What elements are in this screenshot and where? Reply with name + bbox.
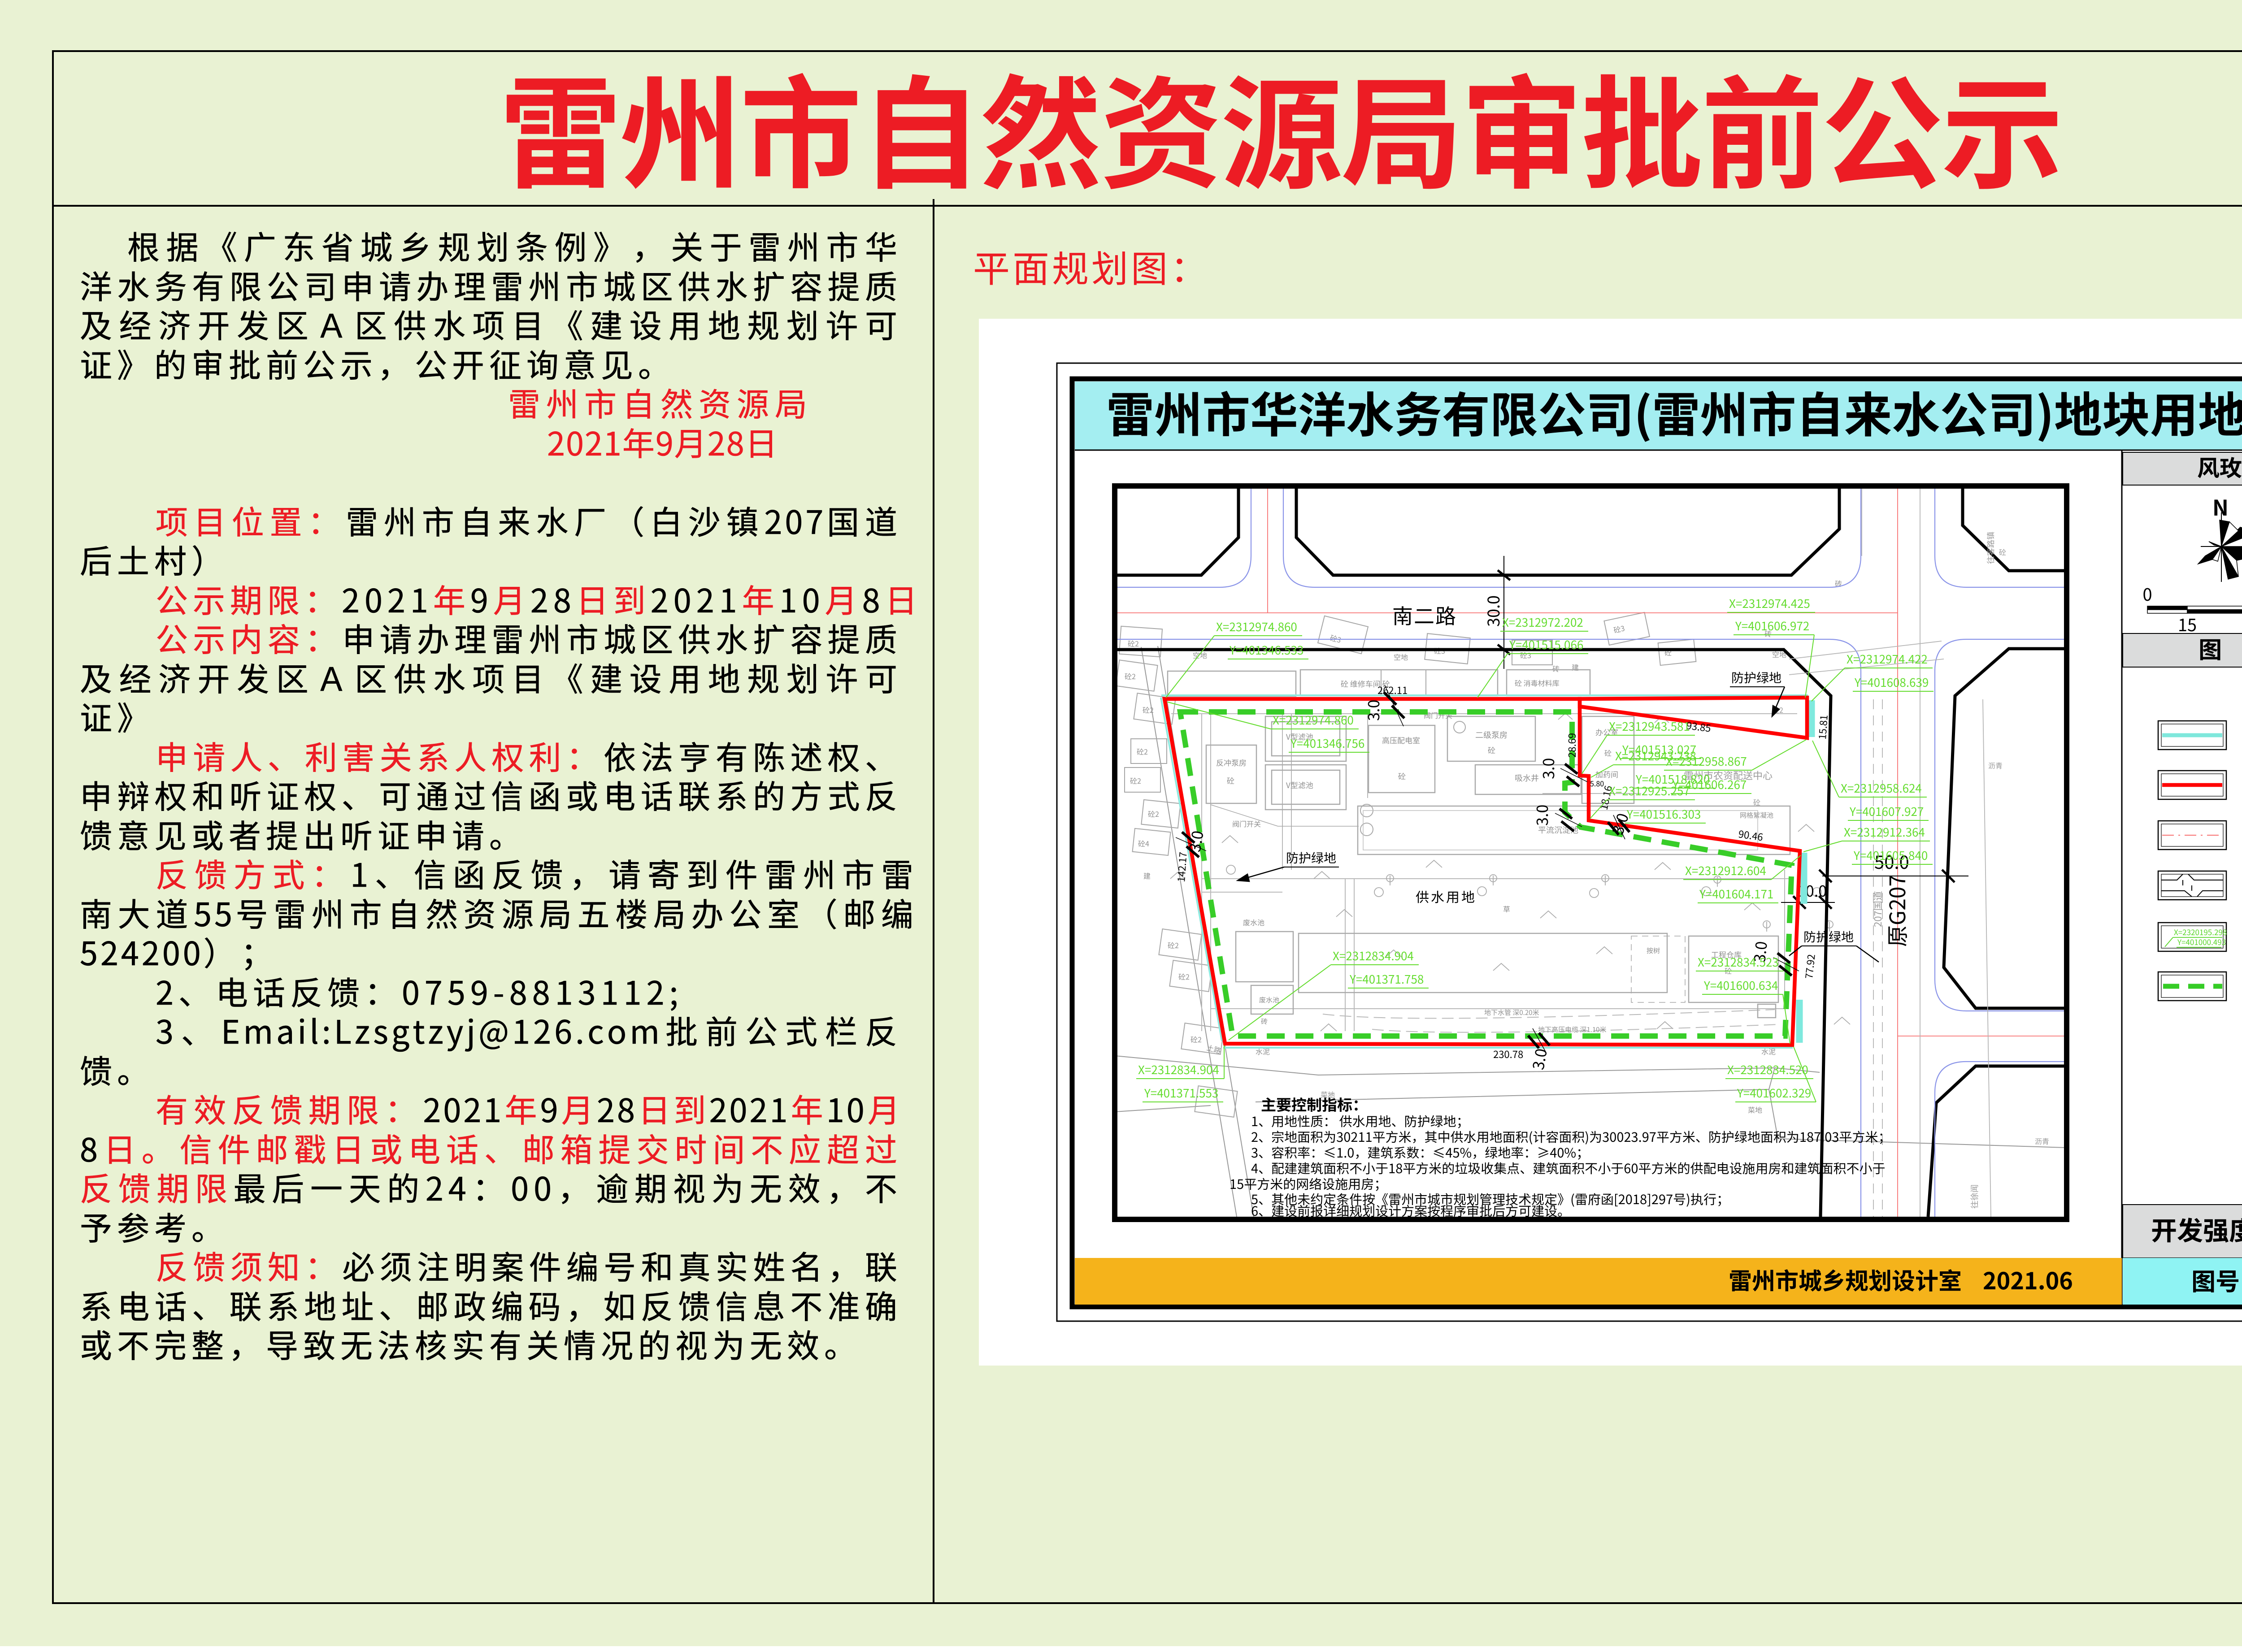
svg-text:262.11: 262.11 (1377, 683, 1408, 697)
svg-text:X=2312958.867: X=2312958.867 (1666, 753, 1747, 769)
svg-text:草: 草 (1503, 903, 1510, 914)
svg-text:Y=401516.303: Y=401516.303 (1626, 806, 1701, 822)
svg-text:3.0: 3.0 (1530, 805, 1552, 826)
svg-text:X=2312972.202: X=2312972.202 (1502, 614, 1583, 630)
svg-text:砼: 砼 (1604, 747, 1612, 758)
svg-text:3.0: 3.0 (1183, 829, 1208, 854)
svg-text:按树: 按树 (1647, 946, 1660, 955)
svg-text:3.0: 3.0 (1537, 758, 1559, 779)
svg-text:沥青: 沥青 (1988, 760, 2003, 771)
svg-text:砼: 砼 (1488, 744, 1495, 755)
svg-text:空地: 空地 (1193, 650, 1207, 660)
svg-text:Y=401608.639: Y=401608.639 (1854, 674, 1929, 690)
svg-text:Y=401346.756: Y=401346.756 (1290, 735, 1364, 751)
svg-text:Y=401371.758: Y=401371.758 (1349, 971, 1424, 987)
svg-text:砼: 砼 (1999, 546, 2006, 557)
svg-text:雷州市华洋水务有限公司(雷州市自来水公司)地块用地规划: 雷州市华洋水务有限公司(雷州市自来水公司)地块用地规划 (1106, 377, 2242, 446)
svg-text:二级泵房: 二级泵房 (1475, 729, 1508, 741)
svg-text:X=2312943.581: X=2312943.581 (1609, 718, 1690, 734)
svg-text:Y=401600.634: Y=401600.634 (1703, 977, 1778, 993)
svg-text:砼2: 砼2 (1191, 1034, 1202, 1045)
svg-text:沥青: 沥青 (2035, 1136, 2049, 1146)
svg-text:N: N (2212, 490, 2229, 522)
svg-text:X=2312912.604: X=2312912.604 (1685, 862, 1766, 879)
svg-text:废水池: 废水池 (1243, 917, 1264, 928)
svg-text:砼2: 砼2 (1143, 704, 1154, 715)
svg-text:原G207: 原G207 (1880, 875, 1912, 947)
svg-text:V型滤池: V型滤池 (1286, 779, 1313, 790)
svg-text:废水池: 废水池 (1259, 995, 1279, 1005)
svg-text:建: 建 (1572, 662, 1579, 672)
svg-text:空地: 空地 (1394, 651, 1408, 662)
svg-text:0: 0 (2142, 581, 2152, 606)
svg-text:X=2312834.520: X=2312834.520 (1727, 1061, 1808, 1078)
svg-text:反冲泵房: 反冲泵房 (1216, 757, 1247, 768)
svg-text:X=2312974.425: X=2312974.425 (1729, 595, 1810, 611)
svg-text:28.69: 28.69 (1564, 733, 1579, 758)
svg-text:砼: 砼 (1398, 770, 1406, 781)
svg-text:雷州市城乡规划设计室: 雷州市城乡规划设计室 (1729, 1262, 1962, 1296)
svg-text:207国道: 207国道 (1870, 891, 1885, 927)
svg-text:X=2312834.904: X=2312834.904 (1333, 947, 1414, 964)
svg-text:X=2312834.904: X=2312834.904 (1138, 1061, 1219, 1078)
svg-text:供水用地: 供水用地 (1416, 886, 1477, 906)
svg-text:图 例: 图 例 (2199, 631, 2242, 665)
svg-text:Y=401606.972: Y=401606.972 (1735, 617, 1809, 634)
svg-text:菜地: 菜地 (1748, 1104, 1762, 1115)
svg-text:建: 建 (1143, 870, 1151, 881)
svg-text:X=2312974.422: X=2312974.422 (1847, 650, 1928, 667)
svg-text:高压配电室: 高压配电室 (1382, 734, 1420, 746)
svg-text:砼: 砼 (1753, 797, 1760, 807)
svg-text:地下高压电缆 深1.10米: 地下高压电缆 深1.10米 (1538, 1025, 1607, 1034)
svg-text:Y=401371.553: Y=401371.553 (1144, 1084, 1218, 1101)
svg-text:Y=401604.171: Y=401604.171 (1699, 885, 1773, 902)
svg-text:砼2: 砼2 (1125, 671, 1136, 681)
svg-text:Y=401606.267: Y=401606.267 (1672, 776, 1747, 793)
svg-text:X=2312974.860: X=2312974.860 (1273, 711, 1354, 728)
svg-text:砖: 砖 (1552, 663, 1560, 674)
svg-text:Y=401605.840: Y=401605.840 (1853, 847, 1928, 863)
svg-text:砼4: 砼4 (1138, 838, 1149, 849)
svg-text:砼2: 砼2 (1137, 746, 1148, 757)
svg-text:30.0: 30.0 (1481, 595, 1504, 627)
svg-text:砼3: 砼3 (1612, 622, 1625, 635)
svg-text:砼2: 砼2 (1148, 808, 1159, 819)
svg-text:15.81: 15.81 (1815, 714, 1831, 740)
svg-text:图号：01: 图号：01 (2191, 1262, 2242, 1297)
svg-text:往徐闻: 往徐闻 (1968, 1184, 1980, 1209)
svg-text:防护绿地: 防护绿地 (1286, 849, 1336, 867)
svg-text:砼: 砼 (1227, 775, 1234, 786)
svg-text:X=2312958.624: X=2312958.624 (1841, 780, 1922, 796)
svg-text:南二路: 南二路 (1392, 600, 1457, 630)
svg-text:Y=401607.927: Y=401607.927 (1849, 803, 1924, 819)
svg-text:Y=401346.533: Y=401346.533 (1229, 642, 1303, 658)
svg-text:地下水管 深0.20米: 地下水管 深0.20米 (1484, 1008, 1539, 1017)
svg-text:砼 消毒材料库: 砼 消毒材料库 (1515, 677, 1560, 688)
svg-text:开发强度控制图: 开发强度控制图 (2151, 1210, 2242, 1248)
svg-text:风玫瑰图: 风玫瑰图 (2197, 451, 2242, 483)
svg-text:3.0: 3.0 (1362, 700, 1384, 721)
svg-text:往客路镇: 往客路镇 (1985, 532, 1996, 564)
svg-text:15: 15 (2178, 611, 2197, 636)
svg-text:砖: 砖 (1261, 1017, 1268, 1026)
svg-text:防护绿地: 防护绿地 (1731, 668, 1781, 686)
svg-text:230.78: 230.78 (1493, 1047, 1523, 1061)
svg-text:吸水井: 吸水井 (1515, 772, 1539, 784)
svg-text:砼2: 砼2 (1130, 775, 1141, 786)
svg-text:X=2312834.523: X=2312834.523 (1698, 954, 1779, 970)
svg-text:砼2: 砼2 (1178, 971, 1190, 982)
svg-text:网格絮凝池: 网格絮凝池 (1740, 811, 1773, 820)
svg-text:Y=401602.329: Y=401602.329 (1737, 1084, 1811, 1101)
svg-text:防护绿地: 防护绿地 (1803, 928, 1854, 945)
svg-text:X=2312912.364: X=2312912.364 (1844, 824, 1925, 840)
svg-text:X=2312974.860: X=2312974.860 (1216, 618, 1297, 635)
svg-text:77.92: 77.92 (1801, 954, 1818, 980)
svg-text:砼2: 砼2 (1168, 940, 1179, 950)
svg-text:142.17: 142.17 (1173, 851, 1190, 882)
svg-text:阀门开关: 阀门开关 (1232, 818, 1261, 829)
svg-text:Y=401515.066: Y=401515.066 (1509, 636, 1583, 653)
svg-text:2021.06: 2021.06 (1983, 1262, 2073, 1296)
svg-text:3.0: 3.0 (1526, 1047, 1551, 1071)
